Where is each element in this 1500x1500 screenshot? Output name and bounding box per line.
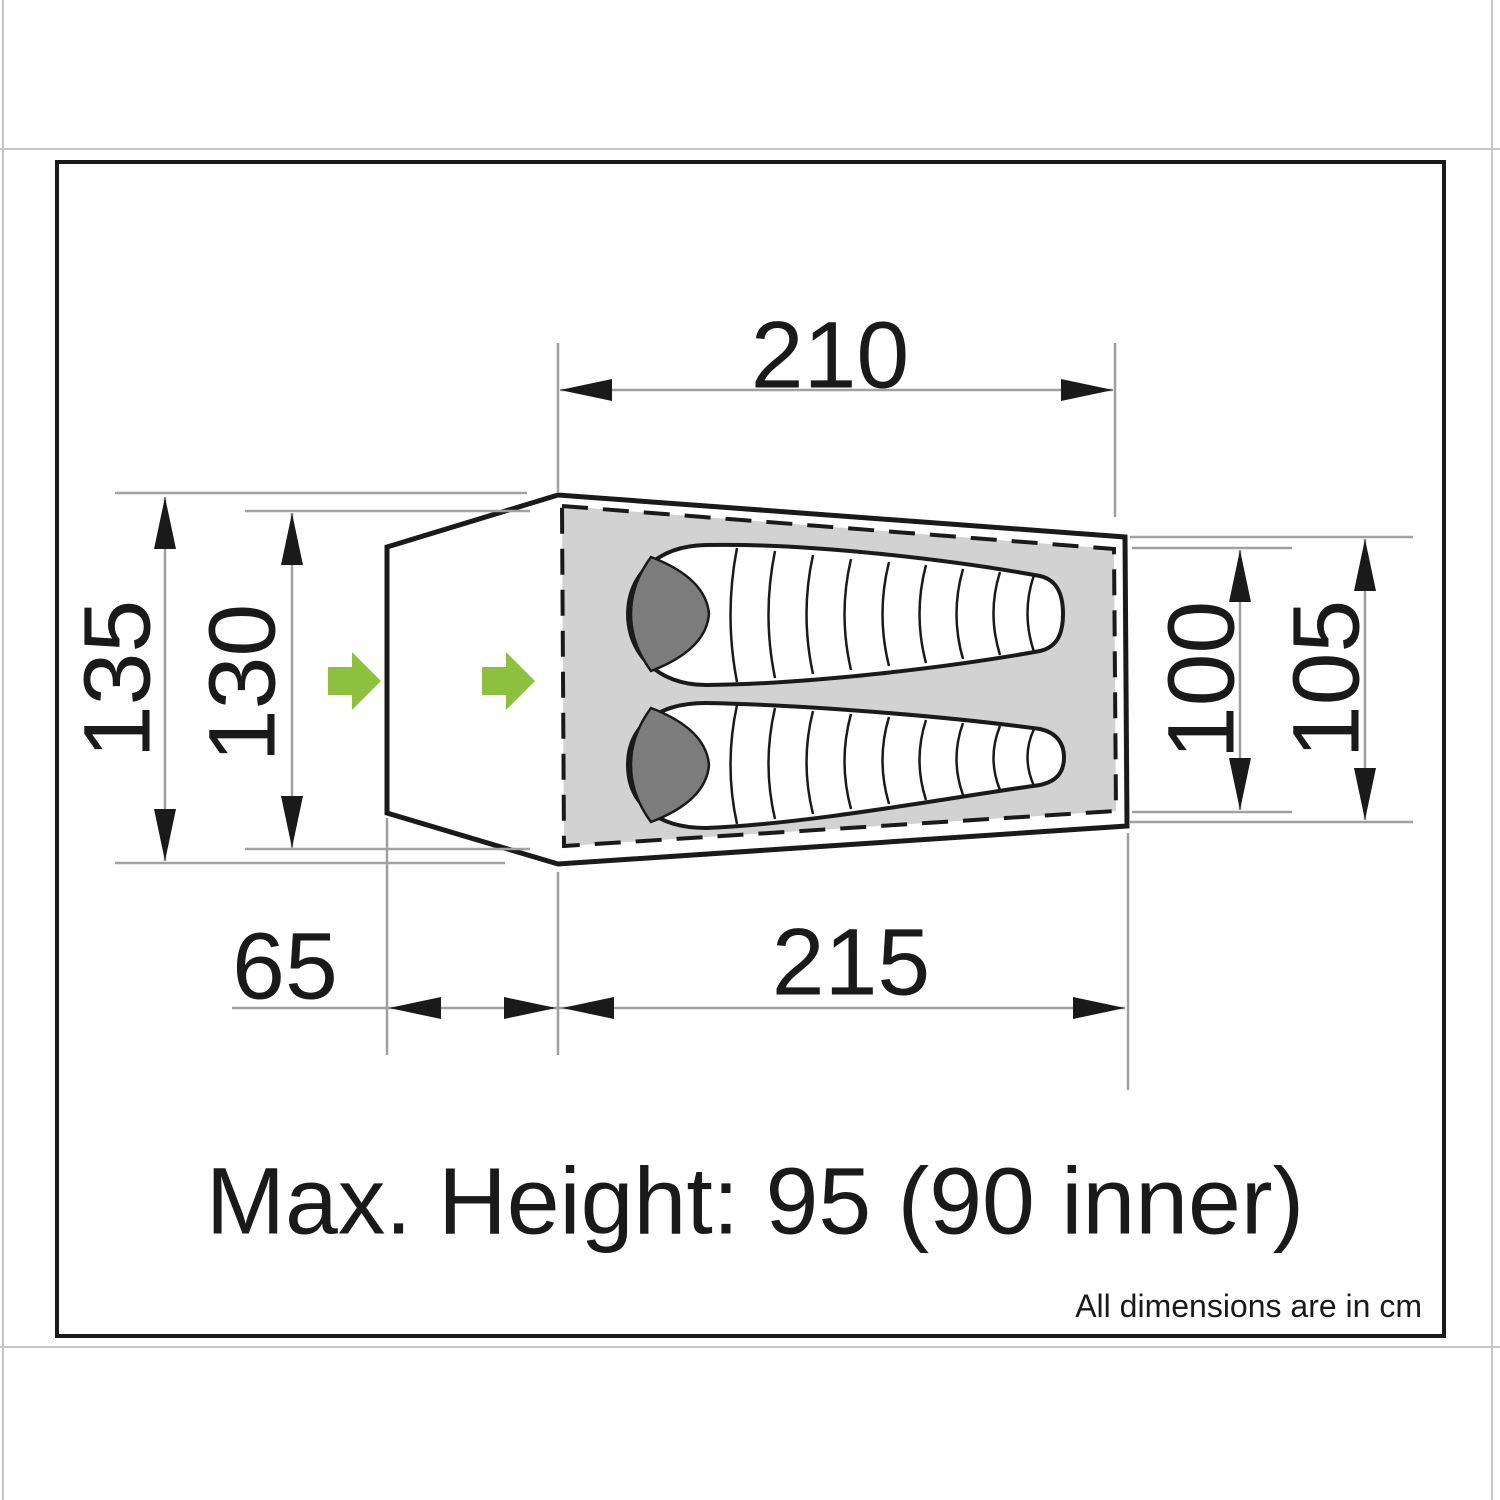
arrowhead-down-icon [281,796,303,848]
arrowhead-up-icon [1229,550,1251,602]
entrance-right-arrow-icon [328,652,381,710]
arrowhead-left-icon [562,997,614,1019]
dim-label-100: 100 [1155,601,1250,760]
dim-label-105: 105 [1280,600,1375,759]
dim-label-130: 130 [196,604,291,763]
arrowhead-up-icon [154,497,176,549]
units-note: All dimensions are in cm [1075,1290,1422,1322]
arrowhead-down-icon [154,809,176,861]
arrowhead-down-icon [1354,768,1376,820]
arrowhead-left-icon [389,997,441,1019]
arrowhead-right-icon [1061,379,1113,401]
arrowhead-up-icon [1354,539,1376,591]
arrowhead-right-icon [1073,997,1125,1019]
arrowhead-down-icon [1229,758,1251,810]
dim-label-215: 215 [772,916,931,1011]
dim-label-135: 135 [71,600,166,759]
dim-label-65: 65 [232,920,338,1015]
max-height-note: Max. Height: 95 (90 inner) [206,1155,1304,1250]
arrowhead-up-icon [281,513,303,565]
dim-label-210: 210 [751,309,910,404]
arrowhead-left-icon [560,379,612,401]
arrowhead-right-icon [504,997,556,1019]
